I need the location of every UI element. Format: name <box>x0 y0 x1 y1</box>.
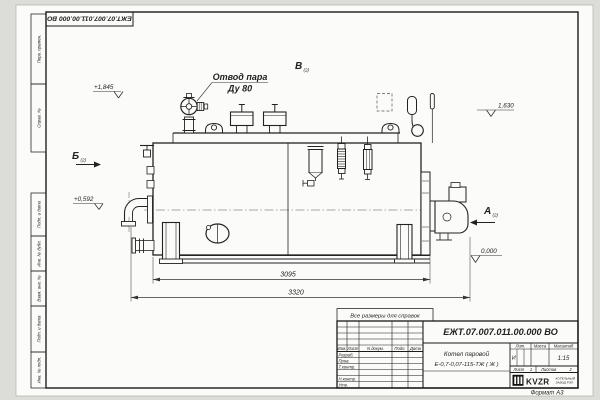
elevation-value: +0,592 <box>74 196 94 203</box>
paper-sheet <box>16 5 593 396</box>
front-face-lug <box>147 167 154 175</box>
tb-sheet-label: Лист <box>513 367 525 372</box>
tb-col-podp: Подп. <box>394 346 405 351</box>
view-letter: Б <box>72 151 79 162</box>
manhole <box>206 224 229 243</box>
tb-scale-value: 1:15 <box>558 356 570 362</box>
corner-designation-text: ЕЖТ.07.007.011.00.000 ВО <box>46 14 131 21</box>
tb-sheets-label: Листов <box>540 367 557 372</box>
tb-lit-label: Лит. <box>515 344 526 349</box>
elevation-value: 0,000 <box>481 248 497 255</box>
format-label: Формат А3 <box>531 391 564 397</box>
tb-product-model: Е-0,7-0,07-115-ТЖ ( Ж ) <box>434 362 498 368</box>
tb-col-izm: Изм. <box>338 346 347 351</box>
steam-outlet-label-line1: Отвод пара <box>213 72 268 82</box>
tb-row-razrab: Разраб. <box>339 353 354 358</box>
front-face-lug <box>147 181 154 189</box>
margin-stamp-label: Инв. № дубл. <box>36 240 41 266</box>
dimension-value: 3095 <box>280 272 296 279</box>
margin-stamp-label: Справ. № <box>36 108 41 128</box>
reference-note-text: Все размеры для справок <box>350 313 420 319</box>
view-sheet-ref: (2) <box>304 68 310 73</box>
tb-col-ndocum: N докум. <box>367 346 384 351</box>
company-logo-text: KVZR <box>526 377 550 386</box>
company-logo: KVZR КОТЕЛЬНЫЙ ЗАВОД РЭП <box>513 375 576 387</box>
tb-mass-label: Масса <box>534 344 547 349</box>
steam-outlet-label-line2: Ду 80 <box>227 84 252 94</box>
dimension-value: 3320 <box>288 290 304 297</box>
tb-col-list: Лист <box>347 346 359 351</box>
tb-row-tkontr: Т.контр. <box>339 365 356 370</box>
tb-lit-value: И <box>512 356 516 362</box>
support-leg-front <box>160 223 183 264</box>
tb-col-data: Дата <box>409 346 422 351</box>
tb-sheet-value: 1 <box>530 367 532 372</box>
margin-stamp-label: Инв. № подл. <box>36 357 41 384</box>
tb-designation: ЕЖТ.07.007.011.00.000 ВО <box>443 327 558 337</box>
company-name-line2: ЗАВОД РЭП <box>556 381 575 385</box>
margin-stamp-label: Взам. инв. № <box>36 275 41 302</box>
elevation-value: +1,845 <box>94 84 114 91</box>
tb-row-nkontr: Н.контр. <box>339 377 357 382</box>
tb-scale-label: Масштаб <box>554 344 574 349</box>
view-letter: В <box>295 61 302 72</box>
margin-stamp-label: Перв. примен. <box>36 35 41 64</box>
margin-stamp-label: Подп. и дата <box>36 315 41 343</box>
margin-stamp-label: Подп. и дата <box>36 200 41 228</box>
tb-product-name: Котел паровой <box>444 350 490 358</box>
elevation-value: 1,630 <box>498 103 514 110</box>
drain-fitting <box>132 238 154 253</box>
view-sheet-ref: (2) <box>81 158 87 163</box>
tb-row-utv: Утв. <box>339 383 349 388</box>
view-letter: А <box>483 206 491 217</box>
drawing-canvas: Перв. примен. Справ. № Подп. и дата Инв.… <box>0 0 600 400</box>
view-sheet-ref: (2) <box>493 213 499 218</box>
support-leg-rear <box>395 225 415 264</box>
tb-row-prov: Пров. <box>339 359 350 364</box>
rear-flange <box>421 172 430 255</box>
drawing-sheet-page: Перв. примен. Справ. № Подп. и дата Инв.… <box>0 0 600 400</box>
